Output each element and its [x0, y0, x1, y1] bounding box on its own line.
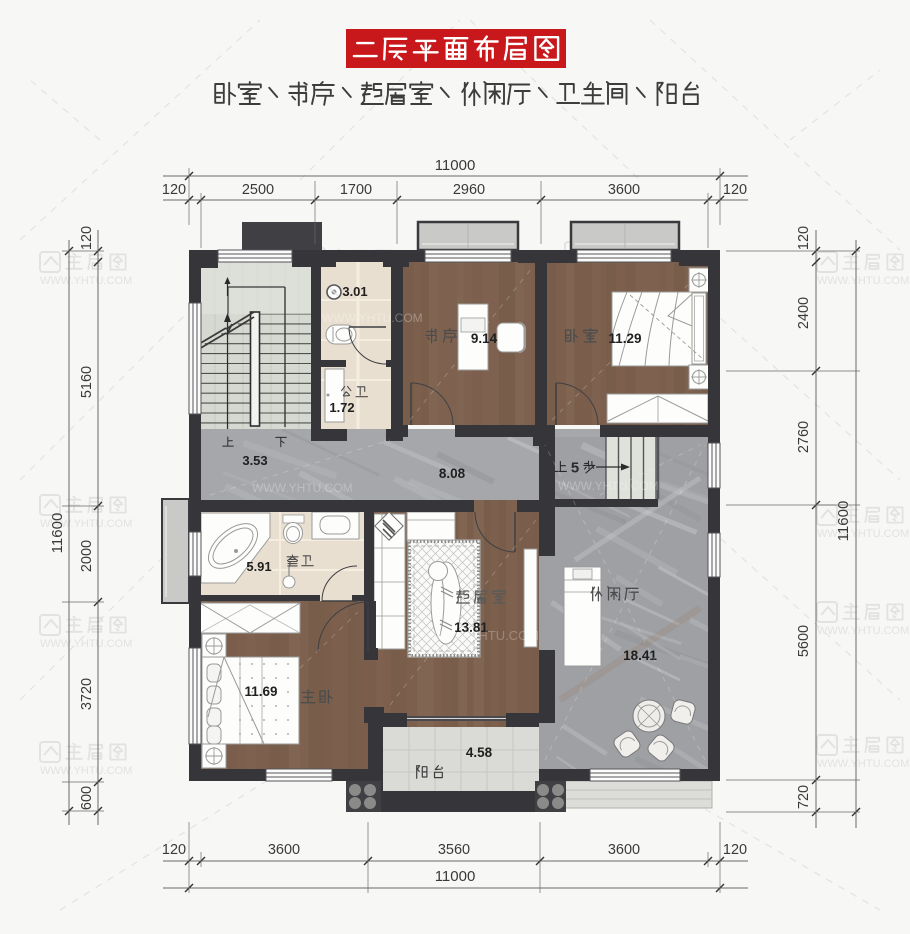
svg-text:3600: 3600 [608, 182, 640, 198]
svg-text:1700: 1700 [340, 182, 372, 198]
svg-text:18.41: 18.41 [623, 648, 657, 663]
svg-text:2400: 2400 [796, 297, 812, 329]
svg-text:120: 120 [162, 842, 186, 858]
svg-text:5600: 5600 [796, 625, 812, 657]
svg-text:WWW.YHTU.COM: WWW.YHTU.COM [817, 758, 909, 770]
svg-text:120: 120 [162, 182, 186, 198]
svg-text:600: 600 [79, 786, 95, 810]
svg-text:3560: 3560 [438, 842, 470, 858]
svg-text:720: 720 [796, 785, 812, 809]
svg-text:120: 120 [79, 226, 95, 250]
svg-text:1.72: 1.72 [329, 400, 354, 415]
svg-text:WWW.YHTU.COM: WWW.YHTU.COM [817, 528, 909, 540]
svg-text:11000: 11000 [435, 157, 476, 174]
svg-text:5.91: 5.91 [246, 559, 271, 574]
svg-text:WWW.YHTU.COM: WWW.YHTU.COM [40, 765, 132, 777]
svg-text:WWW.YHTU.COM: WWW.YHTU.COM [40, 638, 132, 650]
svg-text:WWW.YHTU.COM: WWW.YHTU.COM [430, 628, 539, 643]
svg-text:5160: 5160 [79, 366, 95, 398]
svg-text:3.01: 3.01 [342, 284, 367, 299]
svg-text:WWW.YHTU.COM: WWW.YHTU.COM [252, 481, 353, 495]
svg-text:WWW.YHTU.COM: WWW.YHTU.COM [817, 275, 909, 287]
svg-text:11600: 11600 [49, 513, 66, 554]
svg-text:120: 120 [723, 842, 747, 858]
svg-text:11.29: 11.29 [608, 331, 641, 346]
svg-text:2000: 2000 [79, 540, 95, 572]
svg-text:WWW.YHTU.COM: WWW.YHTU.COM [558, 479, 659, 493]
svg-text:5: 5 [571, 461, 579, 477]
svg-text:120: 120 [723, 182, 747, 198]
svg-text:WWW.YHTU.COM: WWW.YHTU.COM [40, 275, 132, 287]
svg-text:11.69: 11.69 [244, 684, 277, 699]
svg-text:WWW.YHTU.COM: WWW.YHTU.COM [322, 311, 423, 325]
svg-text:3720: 3720 [79, 678, 95, 710]
svg-text:3600: 3600 [268, 842, 300, 858]
svg-text:3.53: 3.53 [242, 453, 267, 468]
svg-text:11600: 11600 [835, 501, 852, 542]
svg-text:4.58: 4.58 [466, 745, 493, 760]
svg-text:120: 120 [796, 226, 812, 250]
svg-text:8.08: 8.08 [439, 466, 466, 481]
svg-text:2960: 2960 [453, 182, 485, 198]
svg-text:2760: 2760 [796, 421, 812, 453]
svg-text:9.14: 9.14 [471, 331, 498, 346]
svg-text:2500: 2500 [242, 182, 274, 198]
svg-text:3600: 3600 [608, 842, 640, 858]
svg-text:11000: 11000 [435, 868, 476, 885]
svg-text:WWW.YHTU.COM: WWW.YHTU.COM [817, 625, 909, 637]
